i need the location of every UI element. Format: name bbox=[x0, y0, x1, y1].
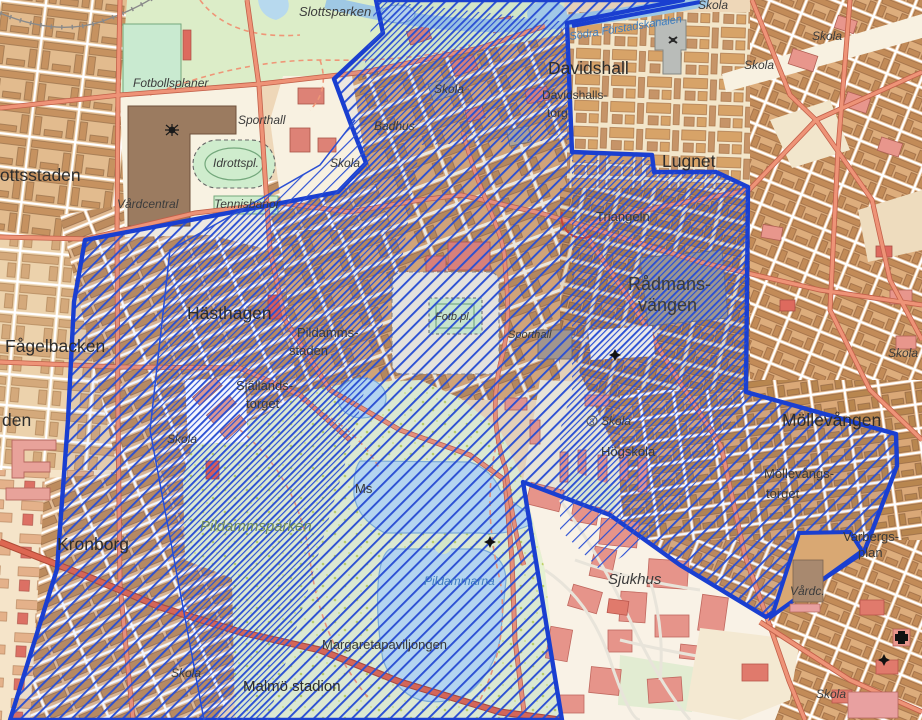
svg-text:Sjukhus: Sjukhus bbox=[608, 571, 662, 588]
svg-text:lottsstaden: lottsstaden bbox=[0, 165, 81, 185]
svg-text:torg: torg bbox=[547, 106, 568, 120]
svg-text:3: 3 bbox=[590, 417, 595, 427]
svg-text:Skola: Skola bbox=[812, 29, 842, 43]
svg-text:Vårdcentral: Vårdcentral bbox=[117, 197, 179, 211]
svg-text:Fotbollsplaner: Fotbollsplaner bbox=[133, 76, 209, 90]
svg-text:Davidshall: Davidshall bbox=[548, 58, 629, 78]
svg-text:Fotb.pl.: Fotb.pl. bbox=[435, 311, 472, 323]
svg-text:Triangeln: Triangeln bbox=[596, 209, 650, 224]
svg-text:torget: torget bbox=[766, 486, 800, 501]
svg-text:Hästhagen: Hästhagen bbox=[187, 303, 272, 323]
svg-text:Skola: Skola bbox=[330, 156, 360, 170]
svg-text:den: den bbox=[2, 410, 31, 430]
svg-text:Tennisbanor: Tennisbanor bbox=[214, 197, 281, 211]
svg-text:Fågelbacken: Fågelbacken bbox=[5, 336, 105, 356]
svg-text:Sporthall: Sporthall bbox=[508, 329, 552, 341]
svg-text:Sporthall: Sporthall bbox=[238, 113, 286, 127]
svg-text:Möllevången: Möllevången bbox=[782, 410, 881, 430]
svg-text:staden: staden bbox=[289, 343, 328, 358]
svg-text:Kronborg: Kronborg bbox=[57, 534, 129, 554]
svg-text:Idrottspl.: Idrottspl. bbox=[213, 156, 259, 170]
svg-text:Vårdc.: Vårdc. bbox=[790, 584, 825, 598]
svg-text:Skola: Skola bbox=[816, 687, 846, 701]
svg-text:Ms: Ms bbox=[355, 481, 373, 496]
svg-text:Badhus: Badhus bbox=[374, 119, 415, 133]
svg-text:Pildammsparken: Pildammsparken bbox=[200, 518, 312, 535]
svg-text:Skola: Skola bbox=[171, 666, 201, 680]
svg-text:vängen: vängen bbox=[638, 295, 697, 315]
svg-text:Själlands-: Själlands- bbox=[236, 378, 293, 393]
svg-text:Skola: Skola bbox=[601, 414, 631, 428]
svg-text:Skola: Skola bbox=[698, 0, 728, 12]
svg-text:Pildammarna: Pildammarna bbox=[424, 574, 495, 588]
svg-text:plan: plan bbox=[858, 545, 883, 560]
svg-text:Slottsparken: Slottsparken bbox=[299, 4, 371, 19]
svg-text:Skola: Skola bbox=[434, 82, 464, 96]
svg-text:Skola: Skola bbox=[888, 346, 918, 360]
svg-text:Möllevångs-: Möllevångs- bbox=[764, 466, 834, 481]
svg-text:Pildamms-: Pildamms- bbox=[297, 325, 358, 340]
svg-text:Davidshalls-: Davidshalls- bbox=[542, 88, 607, 102]
svg-text:torget: torget bbox=[246, 396, 280, 411]
svg-text:Varbergs-: Varbergs- bbox=[843, 529, 899, 544]
svg-text:Malmö stadion: Malmö stadion bbox=[243, 678, 341, 695]
svg-text:Lugnet: Lugnet bbox=[662, 151, 716, 171]
svg-text:Rådmans-: Rådmans- bbox=[628, 274, 711, 294]
svg-text:Högskola: Högskola bbox=[601, 444, 656, 459]
svg-text:Margaretapaviljongen: Margaretapaviljongen bbox=[322, 637, 447, 652]
svg-text:Skola: Skola bbox=[744, 58, 774, 72]
svg-text:Skola: Skola bbox=[167, 432, 197, 446]
